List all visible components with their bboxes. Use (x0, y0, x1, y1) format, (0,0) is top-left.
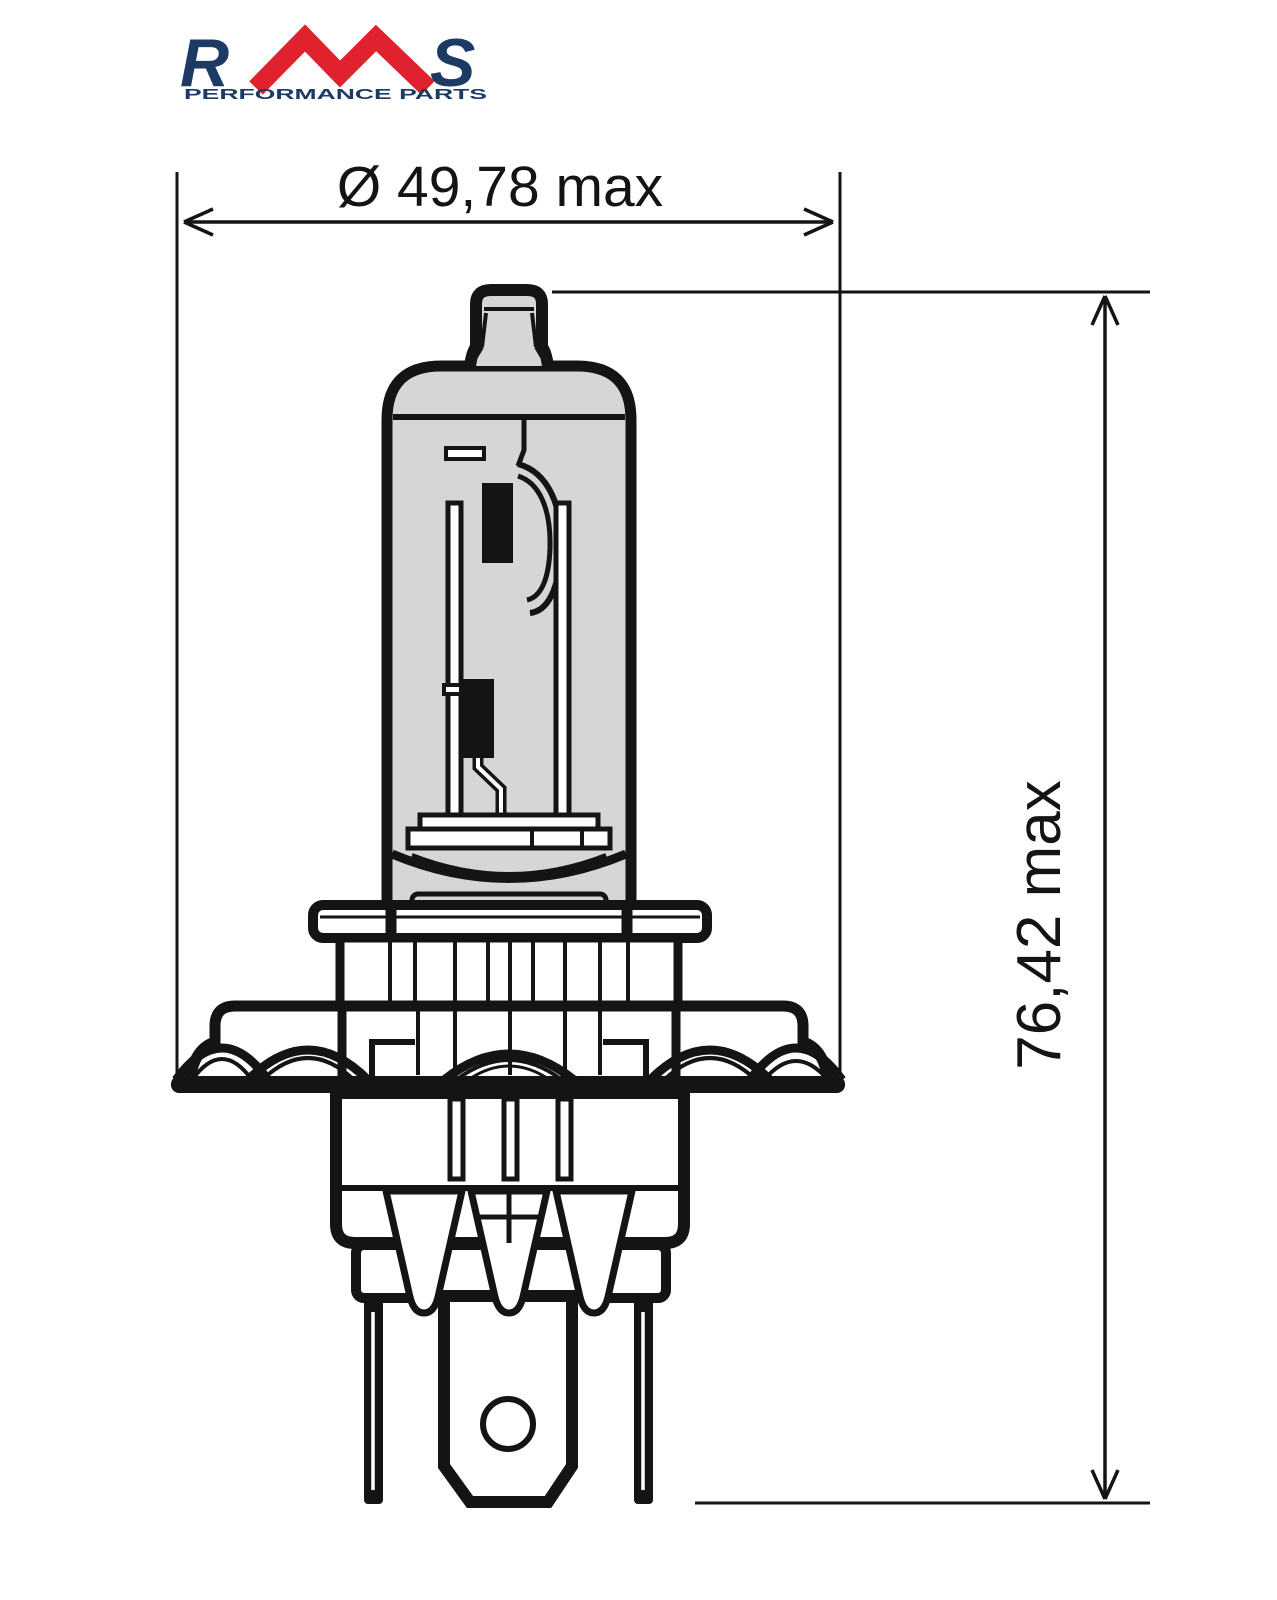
bent-wire-left (372, 1042, 415, 1076)
wire-slot-right (558, 1099, 571, 1179)
bent-wire-right (603, 1042, 646, 1076)
wire-slot-center (504, 1099, 517, 1179)
logo-letter-m-shape (256, 38, 428, 88)
filament-tick (444, 685, 461, 694)
technical-drawing-page: R S SPA PERFORMANCE PARTS Ø 49,78 max 76… (0, 0, 1277, 1600)
height-label: 76,42 max (1005, 780, 1074, 1070)
low-beam-filament (461, 679, 494, 758)
skirt-wires (418, 1010, 600, 1075)
bulb-drawing (171, 290, 845, 1504)
rms-logo: R S SPA PERFORMANCE PARTS (180, 25, 487, 103)
filament-bracket (446, 448, 484, 459)
high-beam-filament (482, 483, 513, 563)
glass-tip-nipple (470, 290, 548, 366)
support-wire-right (556, 503, 569, 818)
base-collar (313, 905, 707, 1005)
logo-tagline: PERFORMANCE PARTS (184, 86, 487, 103)
spade-hole (483, 1399, 533, 1449)
collar-ring (313, 905, 707, 938)
base-cutouts (386, 1191, 632, 1313)
terminals (364, 1296, 653, 1504)
support-wire-left (448, 503, 461, 818)
wire-slot-left (450, 1099, 463, 1179)
mount-plate-lower (408, 829, 610, 848)
diameter-label: Ø 49,78 max (337, 155, 663, 219)
h4-bulb-technical-drawing: R S SPA PERFORMANCE PARTS Ø 49,78 max 76… (0, 0, 1277, 1600)
flange-skirt (171, 1006, 845, 1093)
